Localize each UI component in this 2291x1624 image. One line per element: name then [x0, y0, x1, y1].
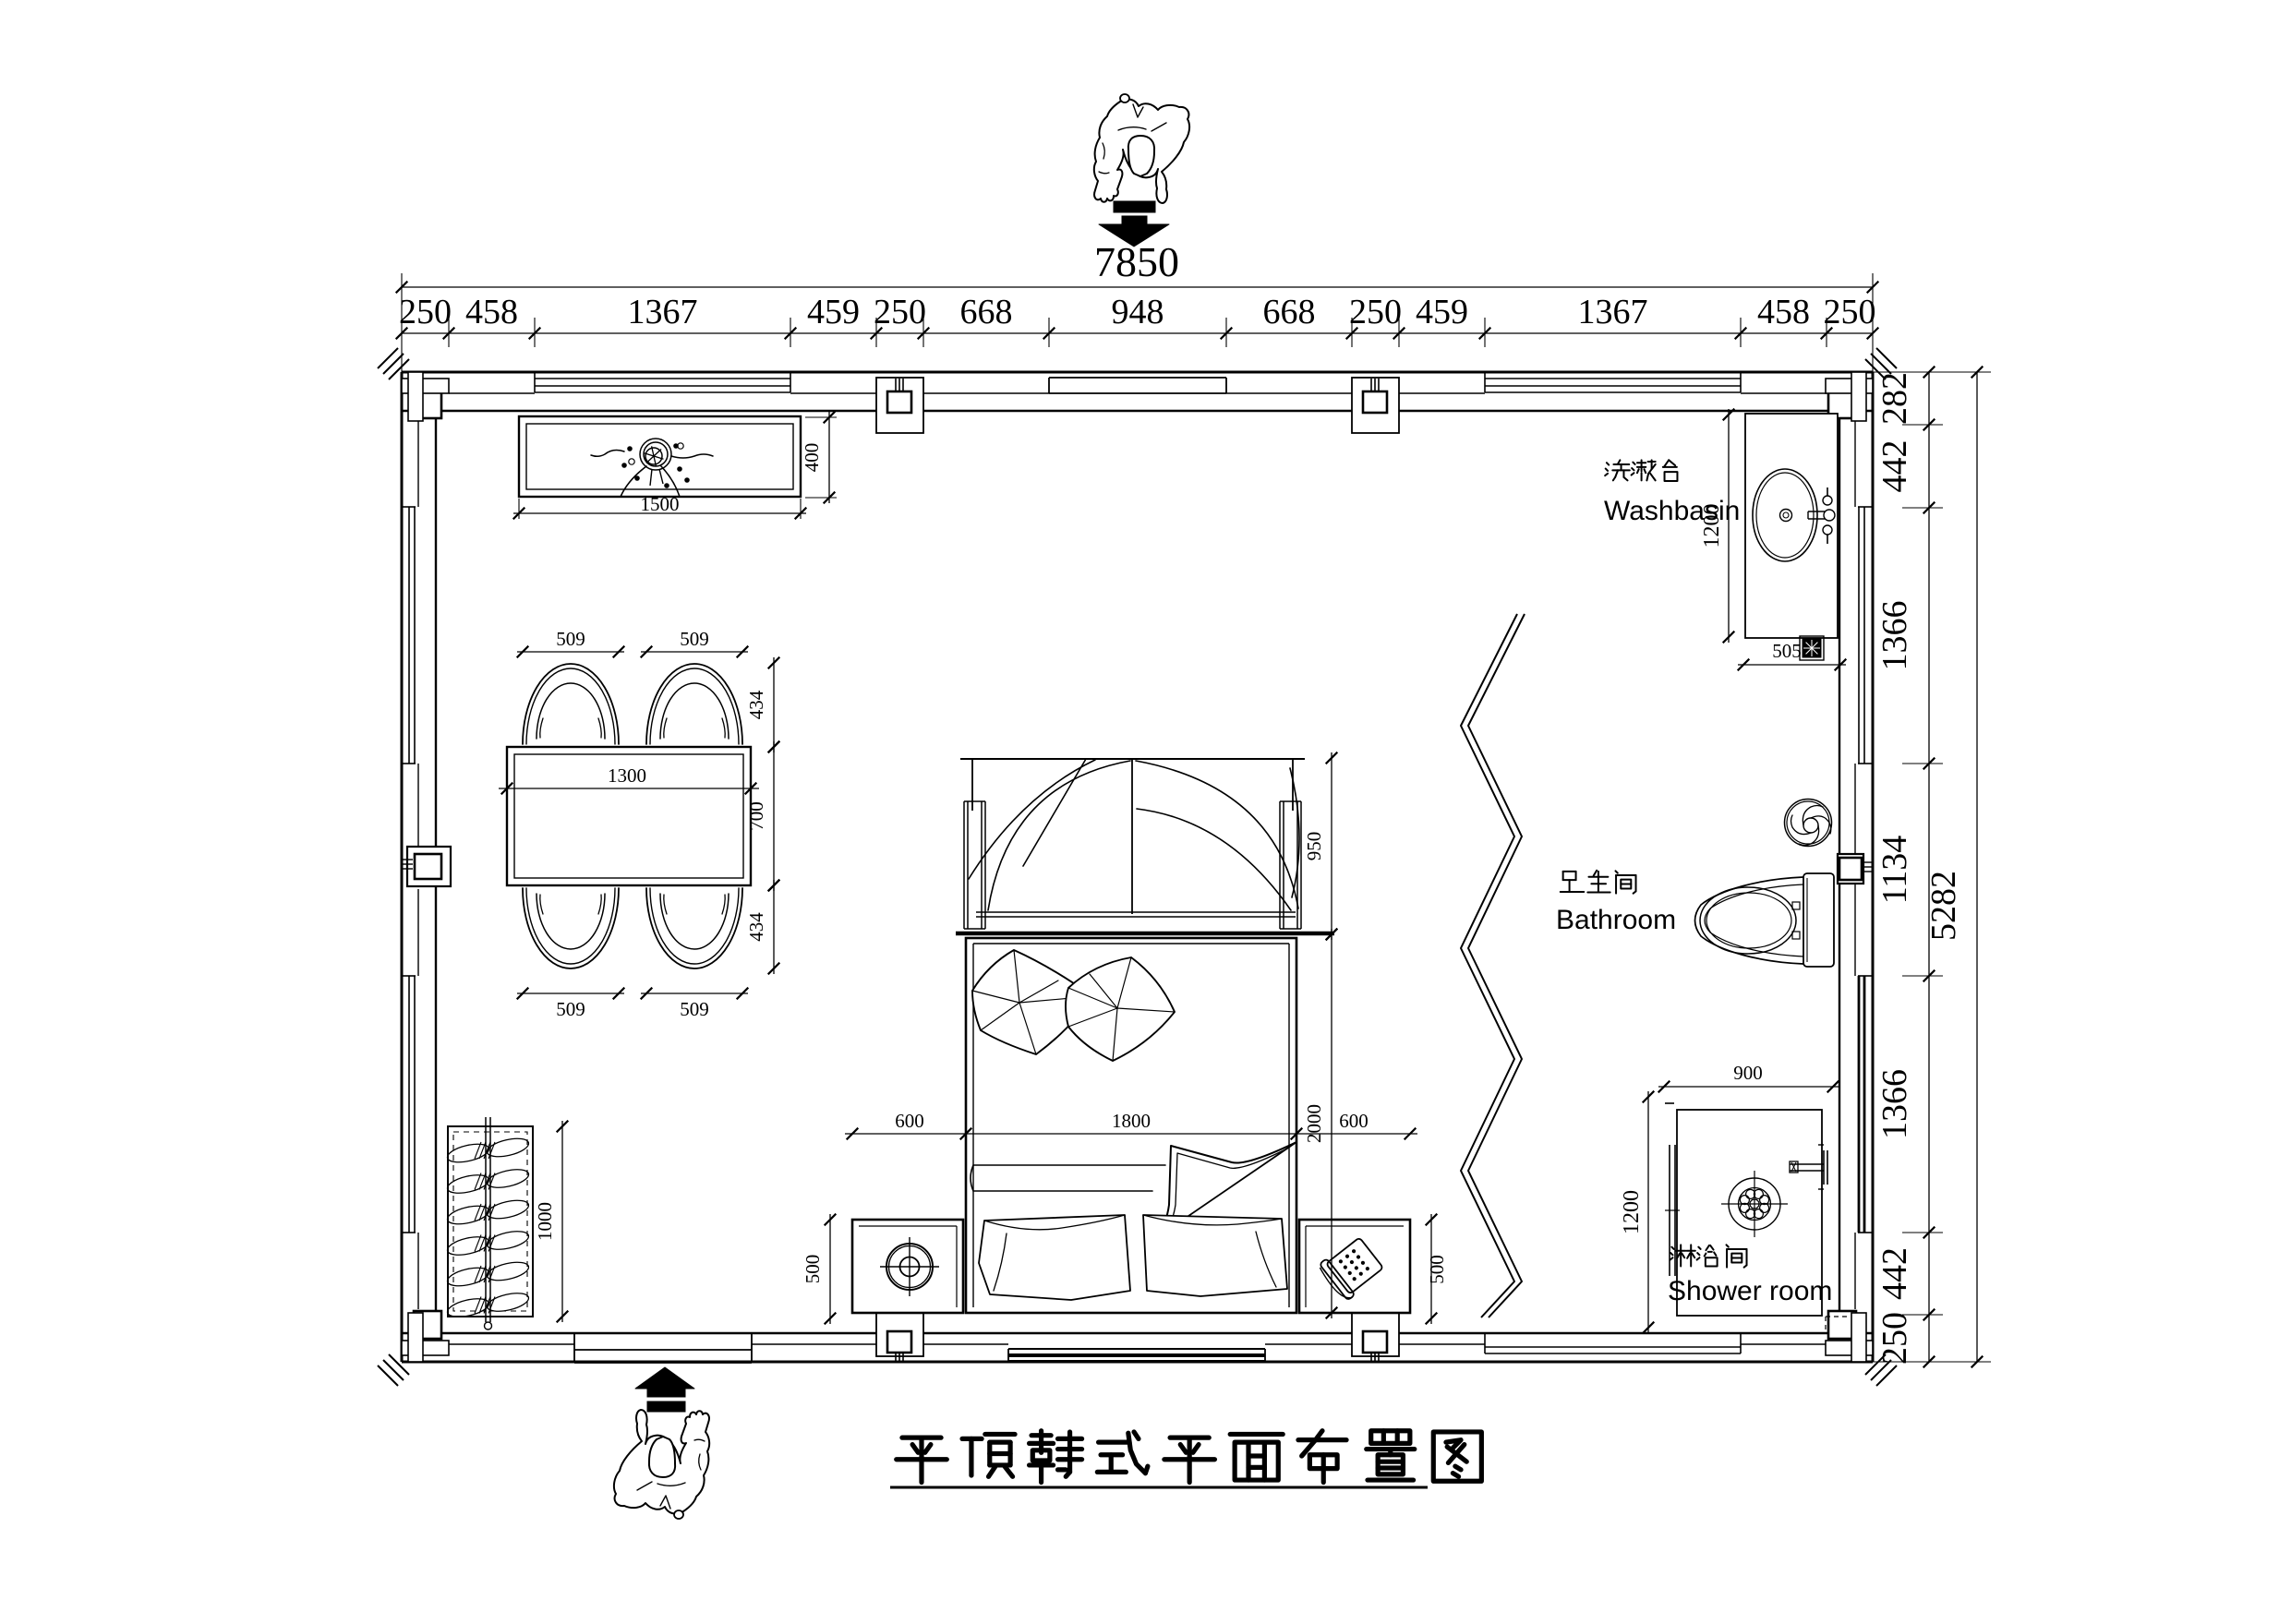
svg-text:600: 600	[1339, 1110, 1369, 1132]
svg-text:1366: 1366	[1875, 1069, 1914, 1139]
svg-text:509: 509	[556, 998, 585, 1020]
svg-text:948: 948	[1112, 293, 1164, 331]
svg-text:1200: 1200	[1620, 1190, 1644, 1234]
svg-text:458: 458	[465, 293, 518, 331]
svg-text:1134: 1134	[1875, 836, 1914, 905]
svg-text:2000: 2000	[1303, 1104, 1325, 1143]
svg-text:950: 950	[1303, 832, 1325, 861]
svg-text:1500: 1500	[641, 493, 680, 515]
svg-text:1800: 1800	[1112, 1110, 1151, 1132]
svg-text:442: 442	[1875, 440, 1914, 493]
svg-text:459: 459	[807, 293, 860, 331]
svg-text:1366: 1366	[1875, 601, 1914, 671]
svg-text:282: 282	[1875, 372, 1914, 425]
svg-text:458: 458	[1757, 293, 1810, 331]
svg-text:900: 900	[1733, 1062, 1763, 1084]
svg-text:400: 400	[801, 443, 823, 473]
svg-text:509: 509	[680, 998, 709, 1020]
svg-text:250: 250	[1824, 293, 1876, 331]
svg-text:500: 500	[1426, 1255, 1448, 1284]
svg-text:1000: 1000	[534, 1202, 556, 1241]
svg-text:442: 442	[1875, 1247, 1914, 1300]
svg-text:509: 509	[556, 628, 585, 650]
svg-text:1367: 1367	[628, 293, 698, 331]
svg-text:509: 509	[680, 628, 709, 650]
svg-text:250: 250	[1349, 293, 1402, 331]
svg-text:5282: 5282	[1924, 871, 1963, 941]
svg-text:505: 505	[1772, 640, 1802, 662]
svg-text:250: 250	[399, 293, 452, 331]
svg-text:Shower room: Shower room	[1668, 1276, 1832, 1306]
svg-text:500: 500	[802, 1255, 824, 1284]
svg-text:1367: 1367	[1578, 293, 1648, 331]
svg-text:668: 668	[960, 293, 1013, 331]
svg-text:434: 434	[745, 912, 767, 942]
svg-text:Washbasin: Washbasin	[1604, 496, 1740, 526]
svg-text:1300: 1300	[608, 764, 646, 787]
svg-text:700: 700	[745, 801, 767, 831]
svg-text:250: 250	[1875, 1312, 1914, 1365]
svg-text:250: 250	[874, 293, 926, 331]
svg-text:668: 668	[1263, 293, 1316, 331]
svg-text:434: 434	[745, 690, 767, 719]
svg-text:Bathroom: Bathroom	[1556, 905, 1676, 935]
svg-text:459: 459	[1416, 293, 1468, 331]
svg-text:600: 600	[895, 1110, 924, 1132]
